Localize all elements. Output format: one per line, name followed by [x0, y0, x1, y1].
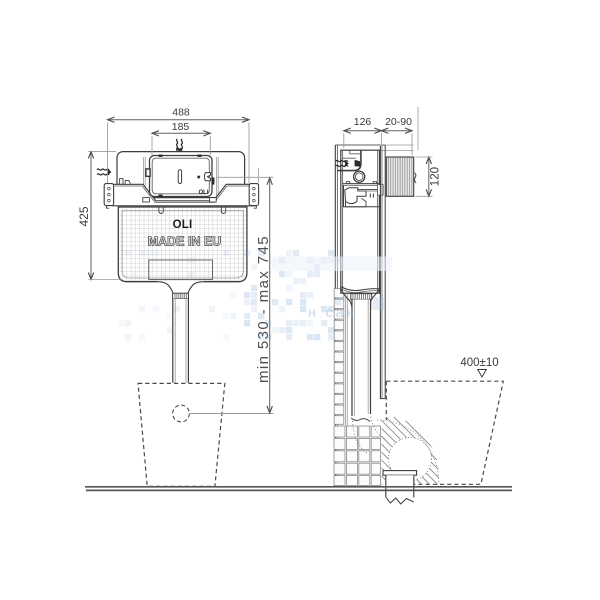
svg-text:MADE IN EU: MADE IN EU	[148, 235, 222, 249]
svg-text:400±10: 400±10	[460, 357, 498, 369]
svg-text:120: 120	[430, 167, 442, 186]
svg-text:488: 488	[172, 107, 190, 119]
svg-text:425: 425	[77, 206, 91, 226]
svg-text:OLI: OLI	[199, 190, 209, 196]
svg-text:185: 185	[172, 121, 190, 133]
svg-text:126: 126	[354, 116, 372, 128]
svg-text:min 530 - max 745: min 530 - max 745	[255, 235, 272, 383]
svg-text:н сан: н сан	[308, 304, 357, 320]
svg-text:OLI: OLI	[173, 219, 193, 231]
svg-text:20-90: 20-90	[385, 116, 412, 128]
